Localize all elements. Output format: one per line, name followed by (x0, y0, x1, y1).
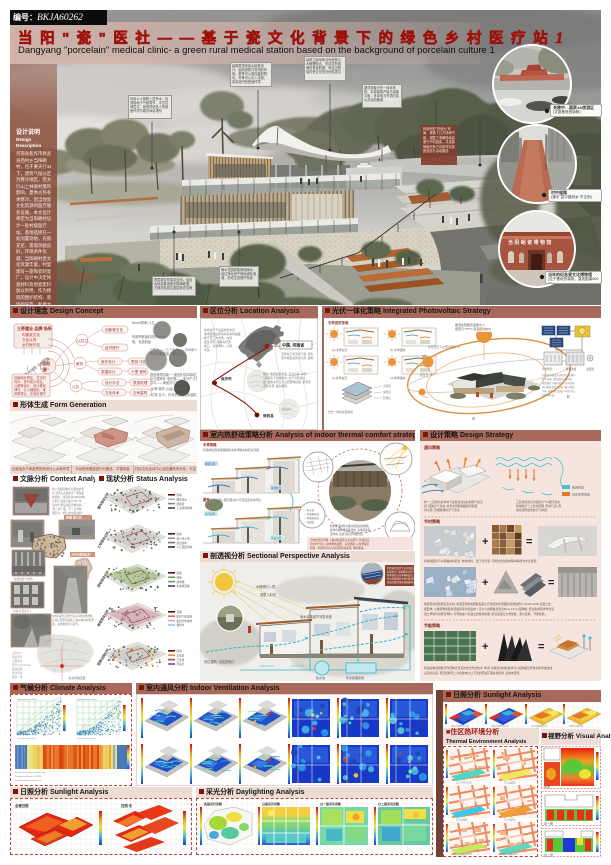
svg-text:多余电量储存并供村民使用,: 多余电量储存并供村民使用, (387, 577, 415, 581)
svg-text:(d) 夏季夜晚: (d) 夏季夜晚 (390, 376, 406, 380)
svg-text:白二层: 白二层 (544, 852, 553, 857)
svg-text:规划中: 规划中 (177, 623, 185, 627)
svg-text:围墙: 围墙 (177, 532, 183, 536)
svg-text:蒸发冷却: 蒸发冷却 (271, 536, 282, 540)
svg-text:夜间风向: 夜间风向 (572, 485, 584, 490)
svg-text:医丹气候地块: 医丹气候地块 (177, 614, 193, 618)
svg-text:夜间通风: 夜间通风 (205, 512, 216, 516)
svg-text:2月4 风速V0.5: 2月4 风速V0.5 (502, 852, 518, 856)
svg-text:凝土骨料代替粉石骨料, 可有效减少混凝土的整体重量, 提高混: 凝土骨料代替粉石骨料, 可有效减少混凝土的整体重量, 提高混凝土力学性能、耐久性… (424, 612, 547, 616)
svg-text:卫生所: 卫生所 (177, 658, 185, 662)
svg-text:光伏板: 光伏板 (383, 384, 391, 388)
svg-text:日照·冬: 日照·冬 (121, 803, 133, 808)
svg-text:领让年轨: 领让年轨 (12, 671, 23, 675)
svg-text:(b) 冬季夜晚: (b) 冬季夜晚 (390, 348, 406, 352)
svg-text:创新瓷文化: 创新瓷文化 (105, 327, 123, 332)
svg-text:图环显示: 图环显示 (177, 497, 188, 501)
svg-text:实现发电, 木格栅及导光气候,: 实现发电, 木格栅及导光气候, (387, 570, 415, 574)
svg-text:— 防水层: — 防水层 (304, 508, 315, 512)
svg-text:历严currentTime: 历严currentTime (12, 663, 31, 667)
svg-text:陶叫瓷械增加、团队补工: 陶叫瓷械增加、团队补工 (150, 351, 186, 356)
svg-text:设计手法: 设计手法 (105, 380, 120, 385)
svg-text:815年货用为历史与山村的城天险吼,: 815年货用为历史与山村的城天险吼, (52, 614, 94, 618)
svg-text:— 种植基质层: — 种植基质层 (304, 516, 320, 520)
svg-text:地元化土地: 地元化土地 (177, 536, 190, 540)
svg-text:集约分布绿地: 集约分布绿地 (177, 619, 193, 623)
svg-text:间冷源, 形成顺畅的空气流动。: 间冷源, 形成顺畅的空气流动。 (424, 508, 462, 512)
svg-text:+: + (482, 536, 488, 548)
svg-text:建筑质: 建筑质 (177, 502, 185, 506)
svg-text:体联重认、迁徙补课守: 体联重认、迁徙补课守 (14, 391, 46, 396)
svg-text:利用屋顶绿化与蓄水屋面双重隔热,: 利用屋顶绿化与蓄水屋面双重隔热, (330, 524, 370, 528)
svg-text:公共卫: 公共卫 (77, 338, 88, 343)
svg-text:旅游一亚: 旅游一亚 (12, 675, 23, 679)
svg-text:节能策略: 节能策略 (424, 622, 441, 628)
svg-text:文化认同: 文化认同 (22, 337, 37, 342)
svg-text:根据现状实验研究及文献, 机质定瓷陶瓷颗粒混凝土符合相关条例: 根据现状实验研究及文献, 机质定瓷陶瓷颗粒混凝土符合相关条例国家标准依照(T 2… (424, 602, 551, 606)
svg-text:木格栅引入境: 木格栅引入境 (256, 584, 276, 589)
svg-text:退田用地: 退田用地 (177, 541, 188, 545)
svg-text:"新一转一眼。不一它35年: "新一转一眼。不一它35年 (52, 507, 82, 511)
svg-text:很另为："相山支化促进期": 很另为："相山支化促进期" (52, 511, 82, 515)
svg-text:1月 9:00-15:00: 1月 9:00-15:00 (456, 781, 472, 785)
svg-text:瓷器底便 男仿布: 瓷器底便 男仿布 (14, 577, 33, 581)
svg-text:吨此天计: 吨此天计 (12, 655, 23, 659)
svg-text:村·村乐山古迹纪念一亚在此: 村·村乐山古迹纪念一亚在此 (52, 491, 84, 495)
svg-text:光伏一体化屋面构造: 光伏一体化屋面构造 (328, 410, 353, 414)
svg-text:平均 热舒适PMV: 平均 热舒适PMV (454, 852, 472, 856)
svg-text:签到·中医: 签到·中医 (131, 359, 147, 364)
svg-text:天时释放使用, 实现产能与用能: 天时释放使用, 实现产能与用能 (542, 385, 575, 389)
svg-text:保温层: 保温层 (383, 390, 391, 394)
svg-text:记忆红·贵族小此为"新";中: 记忆红·贵族小此为"新";中 (52, 499, 82, 503)
svg-text:— 保温隔热层: — 保温隔热层 (304, 512, 320, 516)
svg-text:— 结构层: — 结构层 (304, 520, 315, 524)
svg-text:Psychrometric Chart: Psychrometric Chart (17, 698, 37, 701)
svg-text:夏至日=75°N 冬至日=30°N: 夏至日=75°N 冬至日=30°N (455, 326, 491, 331)
svg-text:文化传承: 文化传承 (105, 390, 120, 395)
svg-text:旧时代·肥后比纪念地的步。: 旧时代·肥后比纪念地的步。 (52, 503, 84, 507)
svg-text:冬至日正午太阳高度角 32°: 冬至日正午太阳高度角 32° (428, 345, 461, 349)
svg-text:空间重构: 空间重构 (133, 390, 148, 395)
svg-text:介里·瓷码: 介里·瓷码 (131, 369, 147, 374)
svg-text:村俗-红纸还有上: 村俗-红纸还有上 (13, 609, 32, 613)
svg-text:中国, 河南省: 中国, 河南省 (282, 342, 304, 348)
svg-text:的能源系统。: 的能源系统。 (542, 393, 556, 397)
svg-text:环多。: 环多。 (204, 348, 212, 352)
svg-text:生态绿道辅: 生态绿道辅 (177, 584, 190, 588)
svg-text:兴需的亮度, 再压低能带二氧化碳电力让与天的钙钛矿阻事者探求: 兴需的亮度, 再压低能带二氧化碳电力让与天的钙钛矿阻事者探求, 且成本更低。 (424, 671, 522, 675)
svg-text:+: + (482, 641, 488, 653)
svg-text:调整入射光: 调整入射光 (260, 592, 277, 597)
svg-text:利用后陶瓷颗粒与作预制光伏瓦的形式光伏技术, 陶瓷-金属复合: 利用后陶瓷颗粒与作预制光伏瓦的形式光伏技术, 陶瓷-金属复合材料板材可以应制镀层… (424, 666, 553, 670)
svg-text:乡村医疗站: 乡村医疗站 (22, 342, 40, 347)
svg-text:活动点: 活动点 (177, 662, 185, 666)
svg-text:Annual temperature carpet plot: Annual temperature carpet plot (15, 771, 45, 774)
svg-text:工业用调查地: 工业用调查地 (177, 506, 193, 510)
svg-text:三养建业·品牌·场所: 三养建业·品牌·场所 (17, 325, 52, 331)
svg-text:·记笺·名义。补补安协维忘私摄队: ·记笺·名义。补补安协维忘私摄队 (150, 392, 197, 397)
svg-text:=: = (526, 536, 532, 548)
svg-text:焦作市: 焦作市 (220, 376, 232, 381)
svg-text:室内热舒适问题: 1.被动优先结合主动调节, 形成适宜: 室内热舒适问题: 1.被动优先结合主动调节, 形成适宜 (310, 538, 370, 542)
svg-text:冬季直射策略: 冬季直射策略 (328, 320, 349, 325)
svg-text:=: = (548, 577, 554, 589)
svg-text:白二层采光系数: 白二层采光系数 (378, 801, 399, 806)
svg-text:白一层采光系数: 白一层采光系数 (320, 801, 341, 806)
svg-text:全层: 全层 (544, 784, 550, 789)
svg-text:夏至日 75°: 夏至日 75° (420, 373, 433, 377)
svg-text:+: + (482, 577, 488, 589)
svg-text:E: E (567, 394, 570, 399)
svg-text:地货统。· 砖铺有显618村中的: 地货统。· 砖铺有显618村中的 (52, 495, 86, 499)
svg-text:白天主导风向: 白天主导风向 (572, 492, 590, 497)
svg-text:雨水收集链节省集系统: 雨水收集链节省集系统 (300, 614, 333, 619)
svg-text:白层采光系数: 白层采光系数 (262, 801, 280, 806)
svg-text:位于天保造像村·村民在此老: 位于天保造像村·村民在此老 (52, 487, 84, 491)
svg-text:余量储存于蓄电池中, 夜间或阴: 余量储存于蓄电池中, 夜间或阴 (542, 381, 575, 385)
svg-text:逆变器: 逆变器 (586, 367, 594, 371)
svg-text:全楼日照: 全楼日照 (14, 803, 29, 808)
svg-text:通风策略: 通风策略 (424, 444, 441, 450)
svg-text:节材策略: 节材策略 (424, 518, 441, 524)
svg-text:围墙: 围墙 (177, 493, 183, 497)
svg-text:温作用, 改善顶层房间热舒适。: 温作用, 改善顶层房间热舒适。 (330, 532, 365, 536)
svg-text:Dangyang, Henan (CSWD): Dangyang, Henan (CSWD) (15, 776, 42, 778)
svg-text:光伏阵列: 光伏阵列 (542, 367, 553, 371)
svg-text:化为电能, 供给建筑日常用电,: 化为电能, 供给建筑日常用电, (542, 377, 573, 381)
svg-text:修武县: 修武县 (262, 413, 274, 418)
svg-text:选遇: 选遇 (177, 610, 183, 614)
svg-text:"瓷": "瓷" (41, 366, 49, 372)
svg-text:构建瓷文化: 构建瓷文化 (22, 332, 40, 337)
svg-text:观。多约爬满分与街务。: 观。多约爬满分与街务。 (52, 622, 81, 626)
svg-text:围墙: 围墙 (177, 649, 183, 653)
svg-text:当 阳 峪 瓷 博 物 馆: 当 阳 峪 瓷 博 物 馆 (508, 239, 551, 246)
svg-text:文化区: 文化区 (177, 653, 185, 657)
svg-text:News现场E·1立: News现场E·1立 (132, 320, 155, 325)
svg-text:表皮机理: 表皮机理 (133, 380, 148, 385)
svg-text:建筑物: 建筑物 (177, 580, 185, 584)
svg-text:(a) 冬季白天: (a) 冬季白天 (332, 348, 348, 352)
svg-text:各层采光系数: 各层采光系数 (203, 801, 222, 806)
svg-text:灰水处理系统: 灰水处理系统 (346, 675, 364, 680)
svg-text:7月 热舒适: 7月 热舒适 (504, 818, 516, 822)
svg-text:公共: 公共 (72, 384, 80, 389)
svg-text:利用屋顶铺设光伏板将太阳能转: 利用屋顶铺设光伏板将太阳能转 (542, 373, 576, 377)
svg-text:白一层: 白一层 (544, 821, 553, 826)
svg-text:利用屋顶设置下沉式绿化光伏板: 利用屋顶设置下沉式绿化光伏板 (387, 566, 415, 570)
svg-text:夏季遮阳与冬季纳阳结合,: 夏季遮阳与冬季纳阳结合, (387, 573, 414, 577)
svg-text:当阳峪村: 当阳峪村 (281, 407, 292, 411)
svg-text:打货灯况所但是成上进60将90但新芳: 打货灯况所但是成上进60将90但新芳 (52, 618, 94, 622)
svg-text:人元现套用地: 人元现套用地 (177, 545, 193, 549)
svg-text:7月 温度场: 7月 温度场 (504, 781, 516, 785)
svg-text:利用绿位置用绿辅助解决夏季解净热舒适问题: 利用绿位置用绿辅助解决夏季解净热舒适问题 (203, 448, 259, 452)
svg-text:蓄电池组: 蓄电池组 (566, 367, 577, 371)
svg-text:低位通风, 当前进风口: 低位通风, 当前进风口 (204, 659, 234, 664)
svg-text:大村山窑烧瓦村: 大村山窑烧瓦村 (70, 553, 91, 557)
svg-text:能要求; 以发泡陶瓷废料经破碎筛分机后成一定大小的颗粒状混合: 能要求; 以发泡陶瓷废料经破碎筛分机后成一定大小的颗粒状混合8mm-16mm型陶… (424, 607, 554, 611)
svg-text:围墙: 围墙 (177, 571, 183, 575)
svg-text:氛围设计: 氛围设计 (101, 369, 116, 374)
svg-text:得热、利用阳光房与地道风预热新风, 降低能耗。: 得热、利用阳光房与地道风预热新风, 降低能耗。 (310, 546, 366, 550)
svg-text:地道送风: 地道送风 (205, 462, 216, 466)
svg-text:最湖美貌: 最湖美貌 (12, 667, 23, 671)
svg-text:医疗设计: 医疗设计 (101, 359, 116, 364)
svg-text:的室内气候; 2.夏季隔热遮阳、自然通风; 3.冬季保温: 的室内气候; 2.夏季隔热遮阳、自然通风; 3.冬季保温 (310, 542, 369, 546)
svg-text:1月 风速场: 1月 风速场 (456, 818, 468, 822)
svg-text:河文名称, 临水相望。: 河文名称, 临水相望。 (263, 384, 290, 388)
svg-text:S: S (472, 416, 475, 421)
svg-text:(c) 夏季白天: (c) 夏季白天 (332, 376, 347, 380)
svg-text:排风热压: 排风热压 (271, 486, 282, 490)
svg-text:利用瓷废料与木质黏材料结合, 制作桌椅、置于诊室里, 与粉色: 利用瓷废料与木质黏材料结合, 制作桌椅、置于诊室里, 与粉色洗生换种等材料的瓷术… (424, 559, 539, 563)
svg-text:结构层: 结构层 (383, 396, 391, 400)
svg-text:绿地: 绿地 (177, 575, 183, 579)
svg-text:Psychrometric Chart: Psychrometric Chart (77, 698, 97, 701)
svg-text:hourly dry-bulb temperature: hourly dry-bulb temperature (15, 779, 43, 782)
svg-text:Dry-bulb temperature: Dry-bulb temperature (77, 737, 97, 740)
svg-text:=: = (538, 641, 544, 653)
svg-text:附窗 瓷文化: 附窗 瓷文化 (66, 515, 82, 520)
svg-text:Dry-bulb temperature: Dry-bulb temperature (17, 737, 37, 740)
svg-text:形成完整的绿色能源循环。: 形成完整的绿色能源循环。 (387, 580, 415, 584)
svg-text:集水池: 集水池 (316, 675, 325, 680)
svg-text:经济提升: 经济提升 (105, 345, 120, 350)
svg-text:利用陶瓷废料的形ойной: 利用陶瓷废料的形ойной (132, 334, 167, 339)
svg-text:…好好问题近区: …好好问题近区 (66, 676, 86, 680)
svg-text:·似等·服务·云朵·超延·众味: ·似等·服务·云朵·超延·众味 (150, 386, 188, 391)
svg-text:服务: 服务 (76, 361, 84, 366)
svg-text:冬季策略: 冬季策略 (203, 442, 217, 447)
svg-text:夏季有效降低屋面传热, 冬季起到保: 夏季有效降低屋面传热, 冬季起到保 (330, 528, 371, 532)
svg-text:瓶、瓦易制品: 瓶、瓦易制品 (132, 339, 151, 344)
svg-text:平衡, 构建绿色低碳乡村医疗站: 平衡, 构建绿色低碳乡村医疗站 (542, 389, 575, 393)
svg-text:山区56个: 山区56个 (12, 651, 23, 655)
svg-text:部分地区在黄河以南, 故称: 部分地区在黄河以南, 故称 (281, 356, 314, 360)
svg-text:通过通风窗将热空气排出。: 通过通风窗将热空气排出。 (516, 508, 550, 512)
svg-text:订补——海品补订补设补补: 订补——海品补订补设补补 (150, 380, 189, 385)
svg-text:山硝补这: 山硝补这 (12, 659, 23, 663)
